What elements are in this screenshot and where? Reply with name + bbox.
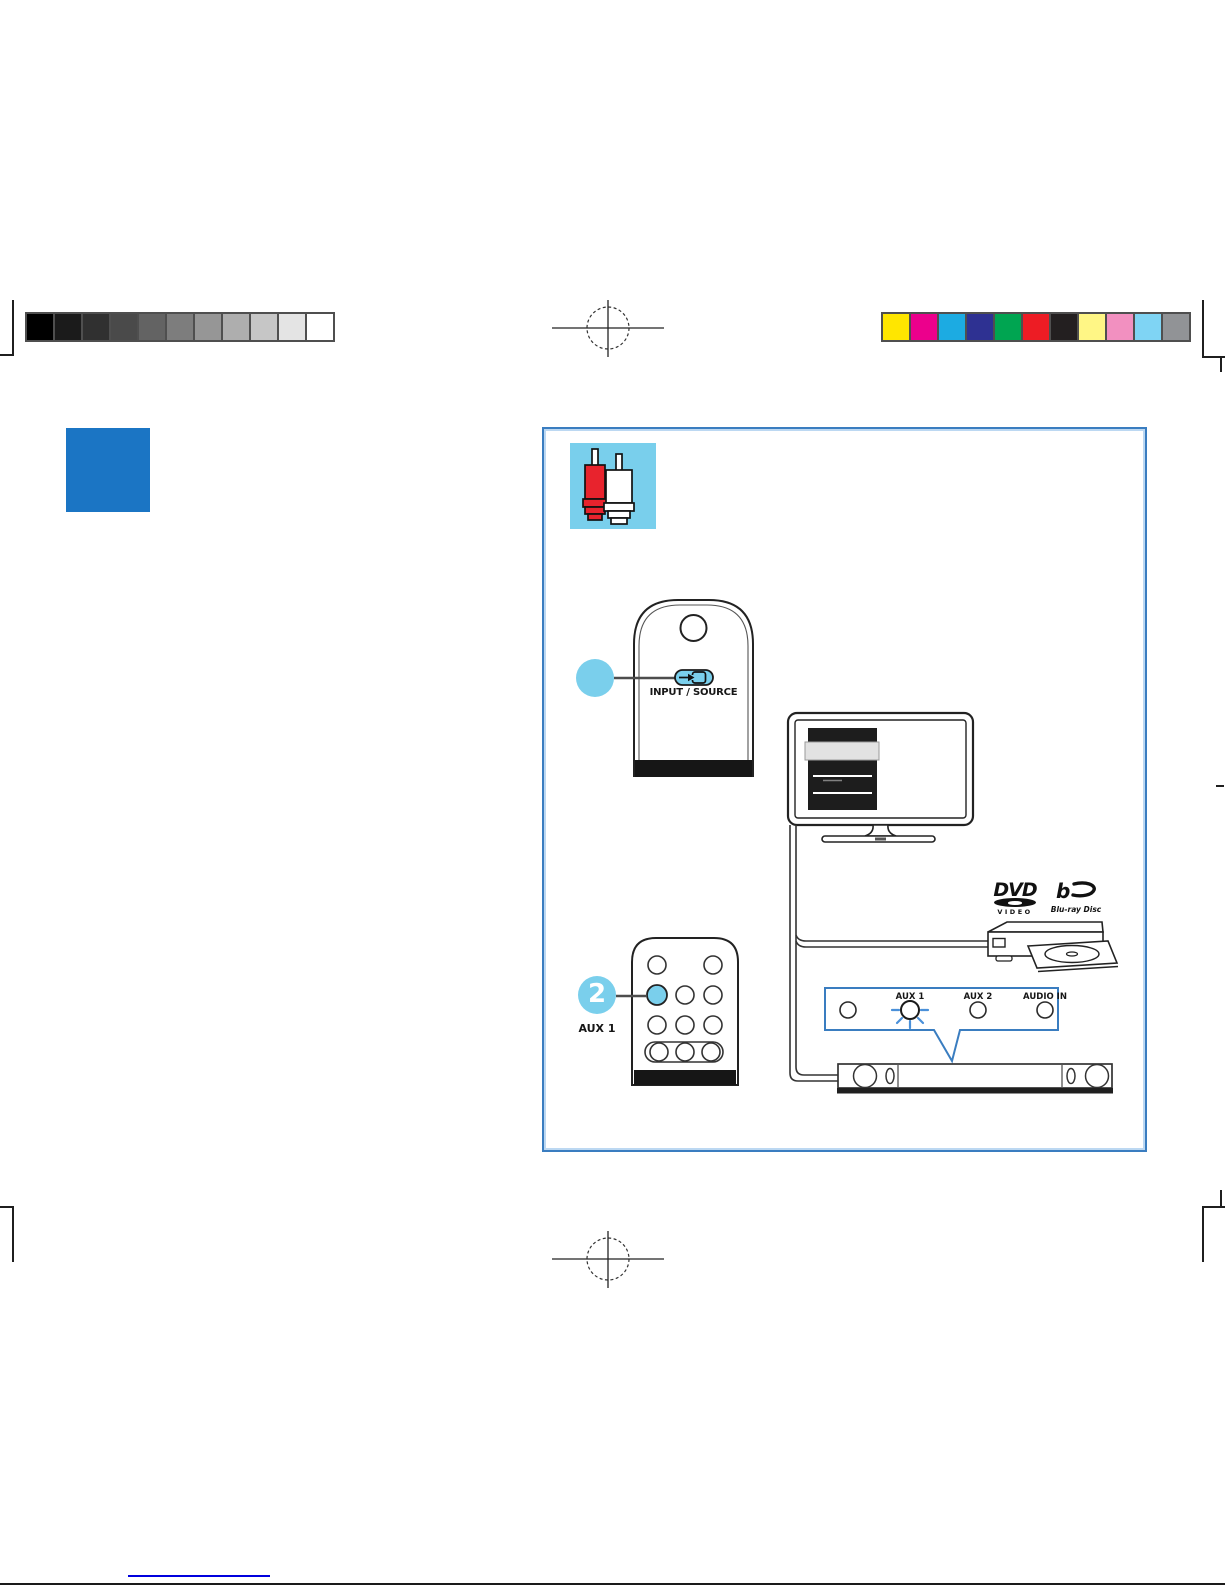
calibration-swatch: [307, 314, 333, 340]
calibration-swatch: [27, 314, 53, 340]
panel-label-aux2: AUX 2: [943, 992, 1013, 1002]
crop-mark-top-left-h: [0, 354, 14, 356]
calibration-swatch: [995, 314, 1021, 340]
crop-mark-top-right-v: [1202, 300, 1204, 358]
step-2-number: 2: [588, 979, 606, 1009]
calibration-swatch: [967, 314, 993, 340]
calibration-swatch: [883, 314, 909, 340]
crop-mark-top-right-v2: [1220, 356, 1222, 372]
registration-mark-top: [550, 296, 666, 360]
calibration-swatch: [1163, 314, 1189, 340]
bluray-logo: b Blu-ray Disc: [1043, 880, 1109, 914]
calibration-swatch: [1135, 314, 1161, 340]
bluray-swoosh-icon: b: [1048, 880, 1104, 902]
chapter-tab: [66, 428, 150, 512]
connection-diagram: 2 INPUT / SOURCE AUX 1 AUX 1 AUX 2 AUDIO…: [542, 427, 1147, 1152]
calibration-swatch: [939, 314, 965, 340]
panel-label-aux1: AUX 1: [875, 992, 945, 1002]
callout-step-1: [576, 659, 614, 697]
dvd-video-logo: DVD VIDEO: [983, 882, 1047, 916]
calibration-swatch: [83, 314, 109, 340]
calibration-swatch: [1023, 314, 1049, 340]
aux1-remote-label: AUX 1: [557, 1022, 637, 1035]
calibration-swatch: [1079, 314, 1105, 340]
panel-label-audioin: AUDIO IN: [1006, 992, 1084, 1002]
crop-mark-top-left-v: [12, 300, 14, 356]
calibration-swatch: [223, 314, 249, 340]
color-calibration-bar: [881, 312, 1191, 342]
remote-aux-drawing: [616, 938, 738, 1085]
crop-mark-bottom-right-h: [1202, 1206, 1225, 1208]
diagram-line-art: [542, 427, 1147, 1152]
input-source-button-label: INPUT / SOURCE: [628, 687, 759, 698]
dvd-logo-subtitle: VIDEO: [983, 908, 1047, 916]
audio-cables: [790, 825, 988, 1081]
manual-page: 2 INPUT / SOURCE AUX 1 AUX 1 AUX 2 AUDIO…: [0, 0, 1225, 1585]
diagram-layer: 2 INPUT / SOURCE AUX 1 AUX 1 AUX 2 AUDIO…: [542, 427, 1147, 1152]
registration-mark-bottom: [550, 1227, 666, 1291]
calibration-swatch: [139, 314, 165, 340]
calibration-swatch: [195, 314, 221, 340]
grayscale-calibration-bar: [25, 312, 335, 342]
soundbar-drawing: [837, 1064, 1113, 1094]
calibration-swatch: [911, 314, 937, 340]
bluray-logo-label: Blu-ray Disc: [1043, 905, 1109, 914]
callout-step-2: 2: [578, 976, 616, 1014]
calibration-swatch: [1051, 314, 1077, 340]
crop-mark-bottom-left-v: [12, 1206, 14, 1262]
svg-text:b: b: [1056, 880, 1070, 902]
crop-mark-bottom-right-v: [1202, 1206, 1204, 1262]
calibration-swatch: [279, 314, 305, 340]
disc-player-drawing: [988, 922, 1118, 972]
crop-mark-bottom-right-v2: [1220, 1190, 1222, 1206]
calibration-swatch: [1107, 314, 1133, 340]
tv-drawing: [788, 713, 973, 842]
calibration-swatch: [251, 314, 277, 340]
crop-mark-bottom-left-h: [0, 1206, 14, 1208]
calibration-swatch: [55, 314, 81, 340]
footer-link-rule: [128, 1575, 270, 1577]
calibration-swatch: [111, 314, 137, 340]
dvd-logo-title: DVD: [983, 882, 1047, 898]
calibration-swatch: [167, 314, 193, 340]
dvd-logo-disc-icon: [994, 898, 1036, 907]
crop-mark-right-tick: [1216, 785, 1224, 787]
